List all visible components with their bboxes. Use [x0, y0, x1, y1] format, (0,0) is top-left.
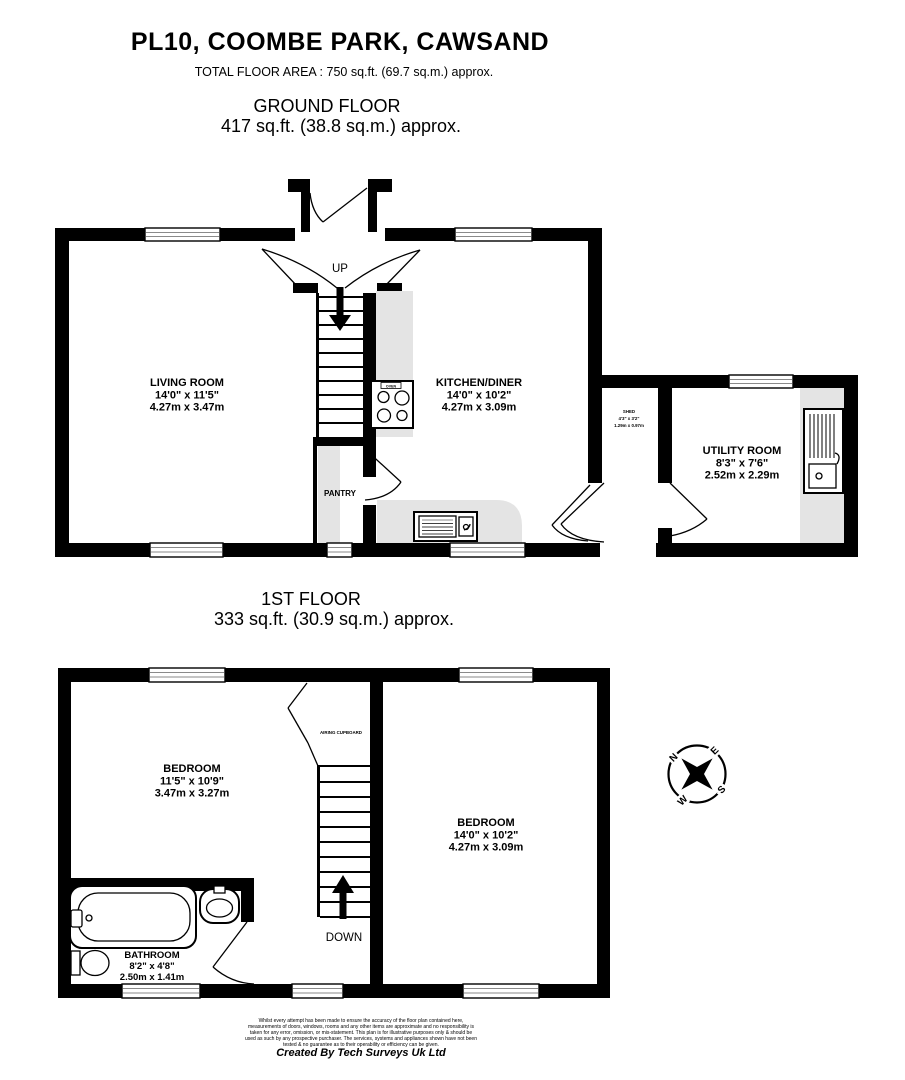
bedroom1-label: BEDROOM — [163, 763, 220, 775]
shed-metric: 1.29m x 0.97m — [614, 423, 644, 428]
ground-floor-stairs — [316, 287, 363, 437]
pantry-label: PANTRY — [324, 489, 357, 498]
utility-room-label: UTILITY ROOM — [703, 445, 782, 457]
shed-label: SHED — [623, 409, 635, 414]
first-floor-heading: 1ST FLOOR — [261, 589, 361, 610]
bathroom-imperial: 8'2" x 4'8" — [129, 961, 174, 972]
kitchen-sink-icon — [414, 512, 477, 541]
first-floor-area: 333 sq.ft. (30.9 sq.m.) approx. — [214, 609, 454, 630]
floorplan-page: { "header": { "title": "PL10, COOMBE PAR… — [0, 0, 905, 1080]
bedroom2-metric: 4.27m x 3.09m — [449, 842, 524, 854]
bedroom2-imperial: 14'0" x 10'2" — [454, 830, 519, 842]
stairs-down-arrow-icon — [332, 875, 354, 919]
bathroom-door — [213, 922, 254, 984]
utility-sink-icon — [804, 409, 843, 493]
up-label: UP — [332, 263, 348, 275]
ground-floor-plan: OVEN LIVING ROOM 14'0" x 11'5" 4.27m x 3… — [50, 175, 865, 565]
bedroom1-imperial: 11'5" x 10'9" — [160, 776, 224, 788]
down-label: DOWN — [326, 932, 362, 944]
first-floor-plan: BEDROOM 11'5" x 10'9" 3.47m x 3.27m BEDR… — [50, 655, 765, 1010]
first-floor-stairs — [317, 765, 370, 919]
ground-floor-area: 417 sq.ft. (38.8 sq.m.) approx. — [221, 116, 461, 137]
oven-label: OVEN — [386, 384, 397, 388]
toilet-icon — [71, 951, 109, 976]
compass-icon: N E S W — [668, 745, 729, 809]
bathroom-metric: 2.50m x 1.41m — [120, 972, 184, 983]
stove-icon: OVEN — [371, 381, 413, 428]
kitchen-imperial: 14'0" x 10'2" — [447, 390, 512, 402]
living-room-label: LIVING ROOM — [150, 377, 224, 389]
total-floor-area: TOTAL FLOOR AREA : 750 sq.ft. (69.7 sq.m… — [195, 65, 494, 79]
bathroom-sink-icon — [200, 886, 239, 923]
bath-icon — [70, 886, 196, 948]
shed-imperial: 4'3" x 3'2" — [619, 416, 640, 421]
utility-room-imperial: 8'3" x 7'6" — [716, 458, 768, 470]
credit-text: Created By Tech Surveys Uk Ltd — [276, 1047, 446, 1059]
bedroom2-label: BEDROOM — [457, 817, 514, 829]
utility-room-metric: 2.52m x 2.29m — [705, 470, 780, 482]
kitchen-label: KITCHEN/DINER — [436, 377, 522, 389]
living-room-metric: 4.27m x 3.47m — [150, 402, 225, 414]
disclaimer-text: Whilst every attempt has been made to en… — [151, 1018, 571, 1048]
page-title: PL10, COOMBE PARK, CAWSAND — [131, 28, 549, 57]
airing-cupboard-label: AIRING CUPBOARD — [320, 730, 362, 735]
living-room-imperial: 14'0" x 11'5" — [155, 390, 219, 402]
bathroom-label: BATHROOM — [124, 950, 179, 961]
airing-cupboard-front — [288, 683, 318, 766]
kitchen-metric: 4.27m x 3.09m — [442, 402, 517, 414]
ground-floor-heading: GROUND FLOOR — [253, 96, 400, 117]
bedroom1-metric: 3.47m x 3.27m — [155, 788, 230, 800]
